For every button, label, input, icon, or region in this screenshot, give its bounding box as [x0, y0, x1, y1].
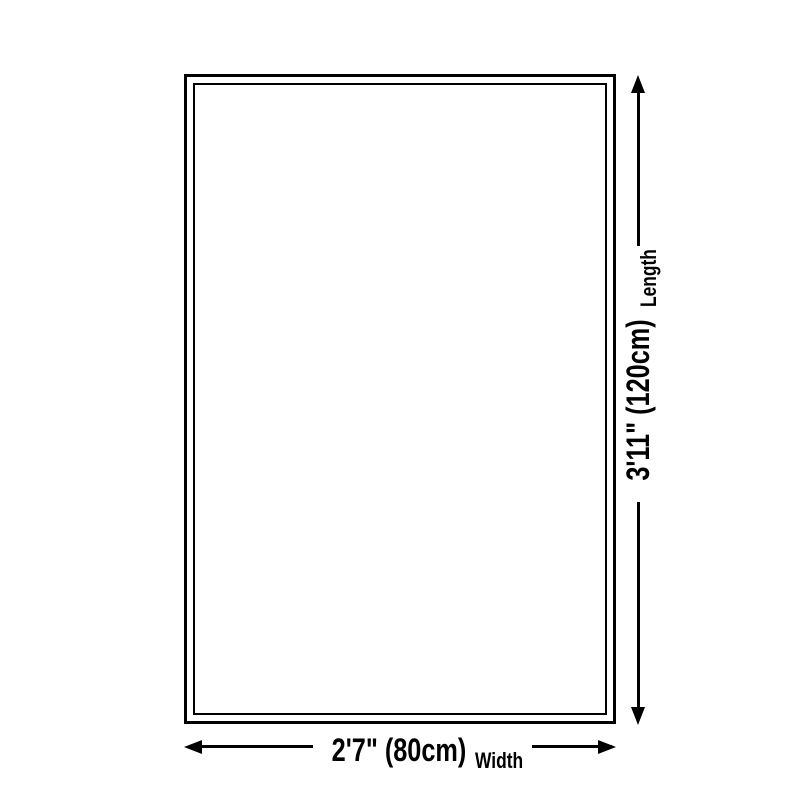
width-value: 2'7" (80cm) — [332, 734, 467, 766]
length-value-wrap: 3'11" (120cm) — [622, 298, 654, 502]
length-dimension-line-bottom — [637, 502, 640, 712]
arrowhead-down-icon — [631, 707, 645, 725]
width-label: Width — [475, 750, 523, 772]
length-label: Length — [638, 249, 660, 307]
rug-inner-outline — [193, 83, 607, 715]
width-dimension-line-left — [200, 745, 313, 748]
length-dimension-line-top — [637, 88, 640, 246]
arrowhead-right-icon — [598, 740, 616, 754]
rug-outline — [184, 74, 616, 724]
length-value: 3'11" (120cm) — [622, 319, 654, 480]
width-value-wrap: 2'7" (80cm) — [314, 734, 484, 766]
dimension-diagram: 2'7" (80cm) Width 3'11" (120cm) Length — [0, 0, 800, 800]
